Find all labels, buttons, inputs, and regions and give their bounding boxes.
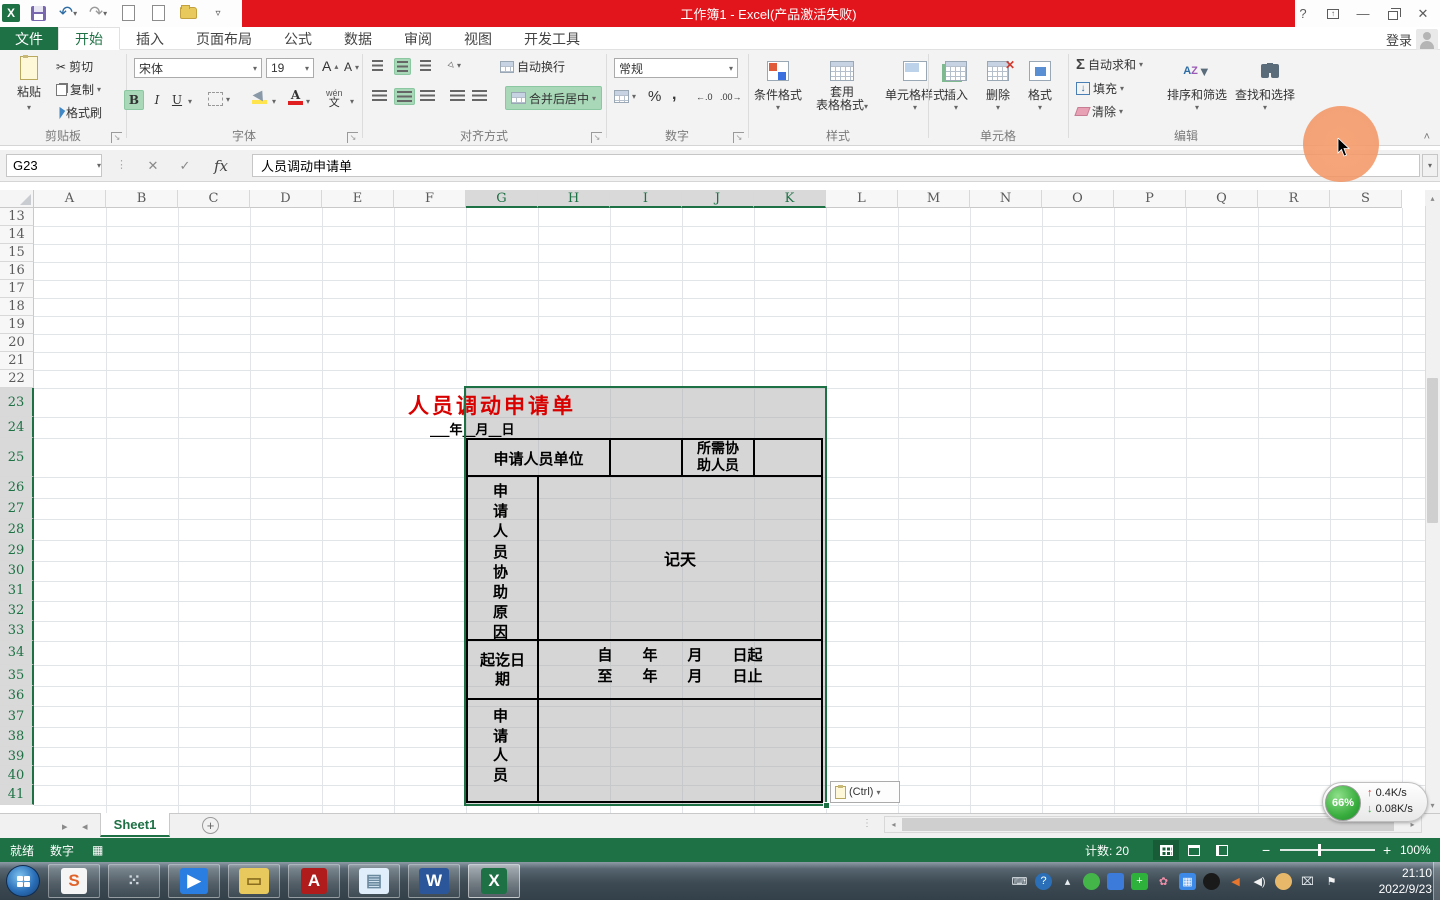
tab-5[interactable]: 数据: [328, 27, 388, 50]
window-title: 工作簿1 - Excel(产品激活失败): [242, 0, 1295, 27]
name-box[interactable]: G23▾: [6, 154, 102, 177]
undo-button[interactable]: ↶▾: [56, 1, 80, 25]
status-numlock: 数字: [50, 838, 74, 862]
cells-group: 单元格: [928, 50, 1068, 146]
notepad-icon: ▤: [359, 868, 389, 894]
word-icon: W: [419, 868, 449, 894]
ribbon-tab-row: 文件 开始插入页面布局公式数据审阅视图开发工具 登录: [0, 27, 1440, 50]
column-header-D[interactable]: D: [250, 190, 322, 208]
sheet-tab-active[interactable]: Sheet1: [100, 813, 170, 837]
tab-file[interactable]: 文件: [0, 27, 58, 50]
font-group-label: 字体: [126, 127, 362, 144]
avatar[interactable]: [1416, 29, 1438, 50]
sign-in-link[interactable]: 登录: [1386, 30, 1412, 49]
row-header-16[interactable]: 16: [0, 262, 34, 280]
page-layout-view-button[interactable]: [1181, 840, 1207, 860]
zoom-slider-thumb[interactable]: [1318, 844, 1321, 856]
editing-group-label: 编辑: [1068, 127, 1304, 144]
start-button[interactable]: [6, 865, 40, 897]
macro-record-icon[interactable]: ▦: [92, 838, 103, 862]
row-header-25[interactable]: 25: [0, 438, 34, 477]
download-speed: ↓ 0.08K/s: [1367, 803, 1413, 815]
column-header-E[interactable]: E: [322, 190, 394, 208]
clipboard-group: 剪贴板↘: [0, 50, 126, 146]
wechat-icon[interactable]: [1083, 873, 1100, 890]
clock-date: 2022/9/23: [1344, 881, 1432, 897]
ribbon-display-icon: ↑: [1327, 9, 1339, 19]
keyboard-icon[interactable]: ⌨: [1011, 873, 1028, 890]
row-header-15[interactable]: 15: [0, 244, 34, 262]
volume-icon[interactable]: ◀): [1251, 873, 1268, 890]
formula-input[interactable]: 人员调动申请单: [252, 154, 1420, 177]
help-button[interactable]: ?: [1290, 3, 1316, 25]
column-header-S[interactable]: S: [1330, 190, 1402, 208]
row-header-22[interactable]: 22: [0, 370, 34, 388]
excel-icon: X: [481, 868, 506, 894]
help-icon[interactable]: ?: [1035, 873, 1052, 890]
video-app-taskbar-button[interactable]: ▶: [168, 864, 220, 898]
explorer-taskbar-button[interactable]: ▭: [228, 864, 280, 898]
clipboard-dialog-launcher[interactable]: ↘: [111, 132, 122, 143]
column-header-B[interactable]: B: [106, 190, 178, 208]
row-header-30[interactable]: 30: [0, 561, 34, 581]
row-header-13[interactable]: 13: [0, 208, 34, 226]
system-tray: ⌨?▴+✿▦◀◀)⌧⚑: [1011, 862, 1340, 900]
editing-group: 编辑: [1068, 50, 1304, 146]
ribbon-tabs: 开始插入页面布局公式数据审阅视图开发工具: [58, 27, 596, 50]
pin-grid-taskbar-button[interactable]: ⁙: [108, 864, 160, 898]
row-header-33[interactable]: 33: [0, 621, 34, 641]
alignment-dialog-launcher[interactable]: ↘: [591, 132, 602, 143]
zoom-slider-track[interactable]: [1280, 849, 1375, 851]
column-header-K[interactable]: K: [754, 190, 826, 208]
row-header-28[interactable]: 28: [0, 519, 34, 540]
column-header-J[interactable]: J: [682, 190, 754, 208]
tab-6[interactable]: 审阅: [388, 27, 448, 50]
column-header-O[interactable]: O: [1042, 190, 1114, 208]
column-header-F[interactable]: F: [394, 190, 466, 208]
zoom-level[interactable]: 100%: [1400, 838, 1431, 862]
minimize-button[interactable]: —: [1350, 3, 1376, 25]
insert-function-button[interactable]: fx: [208, 154, 234, 177]
qq-icon[interactable]: [1203, 873, 1220, 890]
row-header-31[interactable]: 31: [0, 581, 34, 601]
new-file-button[interactable]: [146, 1, 170, 25]
taskbar: S⁙▶▭A▤WX ⌨?▴+✿▦◀◀)⌧⚑ 21:102022/9/23: [0, 862, 1440, 900]
autocad-icon: A: [301, 868, 327, 894]
flower-icon[interactable]: ✿: [1155, 873, 1172, 890]
horizontal-scroll-thumb[interactable]: [902, 818, 1394, 831]
new-sheet-button[interactable]: +: [202, 817, 219, 834]
excel-window: X ↶▾ ↷▾ ⌕ ▿ 工作簿1 - Excel(产品激活失败) ? ↑ — ✕…: [0, 0, 1440, 900]
collapse-ribbon-button[interactable]: ˄: [1424, 131, 1430, 143]
paste-options-icon: [835, 786, 846, 799]
number-group-label: 数字: [606, 127, 748, 144]
row-header-41[interactable]: 41: [0, 785, 34, 805]
enter-button[interactable]: ✓: [172, 154, 198, 177]
font-dialog-launcher[interactable]: ↘: [347, 132, 358, 143]
font-group: 字体↘: [126, 50, 362, 146]
paste-options-button[interactable]: (Ctrl)▾: [830, 781, 900, 803]
title-bar: X ↶▾ ↷▾ ⌕ ▿ 工作簿1 - Excel(产品激活失败) ? ↑ — ✕: [0, 0, 1440, 27]
clock-time: 21:10: [1344, 865, 1432, 881]
media-icon[interactable]: ▦: [1179, 873, 1196, 890]
volume-mute-icon[interactable]: ◀: [1227, 873, 1244, 890]
memory-percent-badge: 66%: [1325, 785, 1361, 821]
input-method-icon[interactable]: [1107, 873, 1124, 890]
row-header-39[interactable]: 39: [0, 747, 34, 766]
page-break-view-button[interactable]: [1209, 840, 1235, 860]
save-icon: [31, 6, 46, 21]
open-button[interactable]: [176, 1, 200, 25]
restore-button[interactable]: [1380, 3, 1406, 25]
vertical-scroll-thumb[interactable]: [1427, 378, 1438, 523]
quick-access-toolbar: X ↶▾ ↷▾ ⌕ ▿: [2, 1, 230, 25]
antivirus-icon[interactable]: +: [1131, 873, 1148, 890]
row-header-35[interactable]: 35: [0, 665, 34, 686]
net-speed-widget[interactable]: 66% ↑ 0.4K/s ↓ 0.08K/s: [1322, 782, 1428, 822]
row-header-34[interactable]: 34: [0, 641, 34, 665]
column-header-R[interactable]: R: [1258, 190, 1330, 208]
row-header-18[interactable]: 18: [0, 298, 34, 316]
styles-group: 样式: [748, 50, 928, 146]
column-header-L[interactable]: L: [826, 190, 898, 208]
tab-2[interactable]: 插入: [120, 27, 180, 50]
window-controls: ? ↑ — ✕: [1290, 0, 1436, 27]
page-layout-icon: [1188, 845, 1200, 856]
notepad-taskbar-button[interactable]: ▤: [348, 864, 400, 898]
status-count: 计数: 20: [1085, 838, 1129, 862]
normal-view-button[interactable]: [1153, 840, 1179, 860]
tab-8[interactable]: 开发工具: [508, 27, 596, 50]
column-header-G[interactable]: G: [466, 190, 538, 208]
page-break-icon: [1216, 845, 1228, 856]
number-dialog-launcher[interactable]: ↘: [733, 132, 744, 143]
mouse-cursor: [1337, 138, 1351, 158]
selection-fill-handle[interactable]: [823, 802, 830, 809]
sheet-nav-left[interactable]: ◂: [82, 820, 88, 833]
row-header-17[interactable]: 17: [0, 280, 34, 298]
normal-view-icon: [1160, 845, 1173, 856]
formula-bar-separator: ⋮: [116, 158, 127, 171]
status-ready: 就绪: [10, 838, 34, 862]
excel-taskbar-button[interactable]: X: [468, 864, 520, 898]
download-arrow-icon: ↓: [1367, 803, 1373, 815]
column-header-Q[interactable]: Q: [1186, 190, 1258, 208]
row-header-27[interactable]: 27: [0, 498, 34, 519]
scroll-up-button[interactable]: ▴: [1425, 190, 1440, 206]
column-header-N[interactable]: N: [970, 190, 1042, 208]
alert-flag-icon[interactable]: ⚑: [1323, 873, 1340, 890]
upload-speed: ↑ 0.4K/s: [1367, 787, 1407, 799]
tab-7[interactable]: 视图: [448, 27, 508, 50]
number-group: 数字↘: [606, 50, 748, 146]
zoom-out-button[interactable]: −: [1262, 838, 1270, 862]
select-all-corner[interactable]: [0, 190, 34, 208]
row-header-29[interactable]: 29: [0, 540, 34, 561]
zoom-in-button[interactable]: +: [1383, 838, 1391, 862]
sheetbar-splitter[interactable]: ⋮: [862, 818, 872, 829]
save-button[interactable]: [26, 1, 50, 25]
column-header-A[interactable]: A: [34, 190, 106, 208]
video-app-icon: ▶: [180, 868, 207, 894]
sogou-icon: S: [61, 868, 86, 894]
row-header-37[interactable]: 37: [0, 706, 34, 727]
alignment-group: 对齐方式↘: [362, 50, 606, 146]
row-header-36[interactable]: 36: [0, 686, 34, 706]
print-preview-button[interactable]: ⌕: [116, 1, 140, 25]
row-header-20[interactable]: 20: [0, 334, 34, 352]
ribbon-display-options-button[interactable]: ↑: [1320, 3, 1346, 25]
row-header-40[interactable]: 40: [0, 766, 34, 785]
ribbon: 粘贴▾ ✂剪切 复制▾ 格式刷 剪贴板↘ 宋体▾ 19▾ A▴ A▾ B I U…: [0, 50, 1440, 146]
formula-bar-expand-button[interactable]: ▾: [1422, 154, 1438, 177]
styles-group-label: 样式: [748, 127, 928, 144]
excel-logo-icon: X: [2, 4, 20, 22]
tab-3[interactable]: 页面布局: [180, 27, 268, 50]
close-button[interactable]: ✕: [1410, 3, 1436, 25]
row-header-21[interactable]: 21: [0, 352, 34, 370]
row-header-19[interactable]: 19: [0, 316, 34, 334]
taskbar-clock[interactable]: 21:102022/9/23: [1344, 865, 1432, 897]
column-header-H[interactable]: H: [538, 190, 610, 208]
qat-customize-button[interactable]: ▿: [206, 1, 230, 25]
status-bar: 就绪 数字 ▦ 计数: 20 − + 100%: [0, 838, 1440, 862]
row-header-32[interactable]: 32: [0, 601, 34, 621]
alignment-group-label: 对齐方式: [362, 127, 606, 144]
row-header-26[interactable]: 26: [0, 477, 34, 498]
network-icon[interactable]: ⌧: [1299, 873, 1316, 890]
cells-group-label: 单元格: [928, 127, 1068, 144]
tray-expand-icon[interactable]: ▴: [1059, 873, 1076, 890]
row-header-23[interactable]: 23: [0, 388, 34, 417]
tab-1[interactable]: 开始: [58, 27, 120, 50]
column-header-C[interactable]: C: [178, 190, 250, 208]
sogou-taskbar-button[interactable]: S: [48, 864, 100, 898]
print-preview-icon: [122, 5, 135, 21]
row-header-38[interactable]: 38: [0, 727, 34, 747]
selection-border: [464, 386, 827, 806]
scroll-left-button[interactable]: ◂: [886, 817, 901, 832]
column-header-M[interactable]: M: [898, 190, 970, 208]
word-taskbar-button[interactable]: W: [408, 864, 460, 898]
column-header-P[interactable]: P: [1114, 190, 1186, 208]
explorer-icon: ▭: [239, 868, 269, 894]
show-desktop-button[interactable]: [1433, 862, 1440, 900]
view-shortcuts: [1152, 838, 1236, 862]
autocad-taskbar-button[interactable]: A: [288, 864, 340, 898]
assistant-icon[interactable]: [1275, 873, 1292, 890]
cancel-button[interactable]: ✕: [140, 154, 166, 177]
tab-4[interactable]: 公式: [268, 27, 328, 50]
open-folder-icon: [180, 7, 197, 19]
new-file-icon: [152, 5, 165, 21]
restore-icon: [1388, 11, 1398, 20]
windows-flag-icon: [17, 876, 31, 888]
upload-arrow-icon: ↑: [1367, 787, 1373, 799]
row-header-14[interactable]: 14: [0, 226, 34, 244]
row-header-24[interactable]: 24: [0, 417, 34, 438]
redo-button[interactable]: ↷▾: [86, 1, 110, 25]
pin-grid-icon: ⁙: [120, 868, 148, 894]
formula-bar: G23▾ ⋮ ✕ ✓ fx 人员调动申请单 ▾: [0, 150, 1440, 182]
column-header-I[interactable]: I: [610, 190, 682, 208]
clipboard-group-label: 剪贴板: [0, 127, 126, 144]
sheet-nav-right[interactable]: ▸: [62, 820, 68, 833]
